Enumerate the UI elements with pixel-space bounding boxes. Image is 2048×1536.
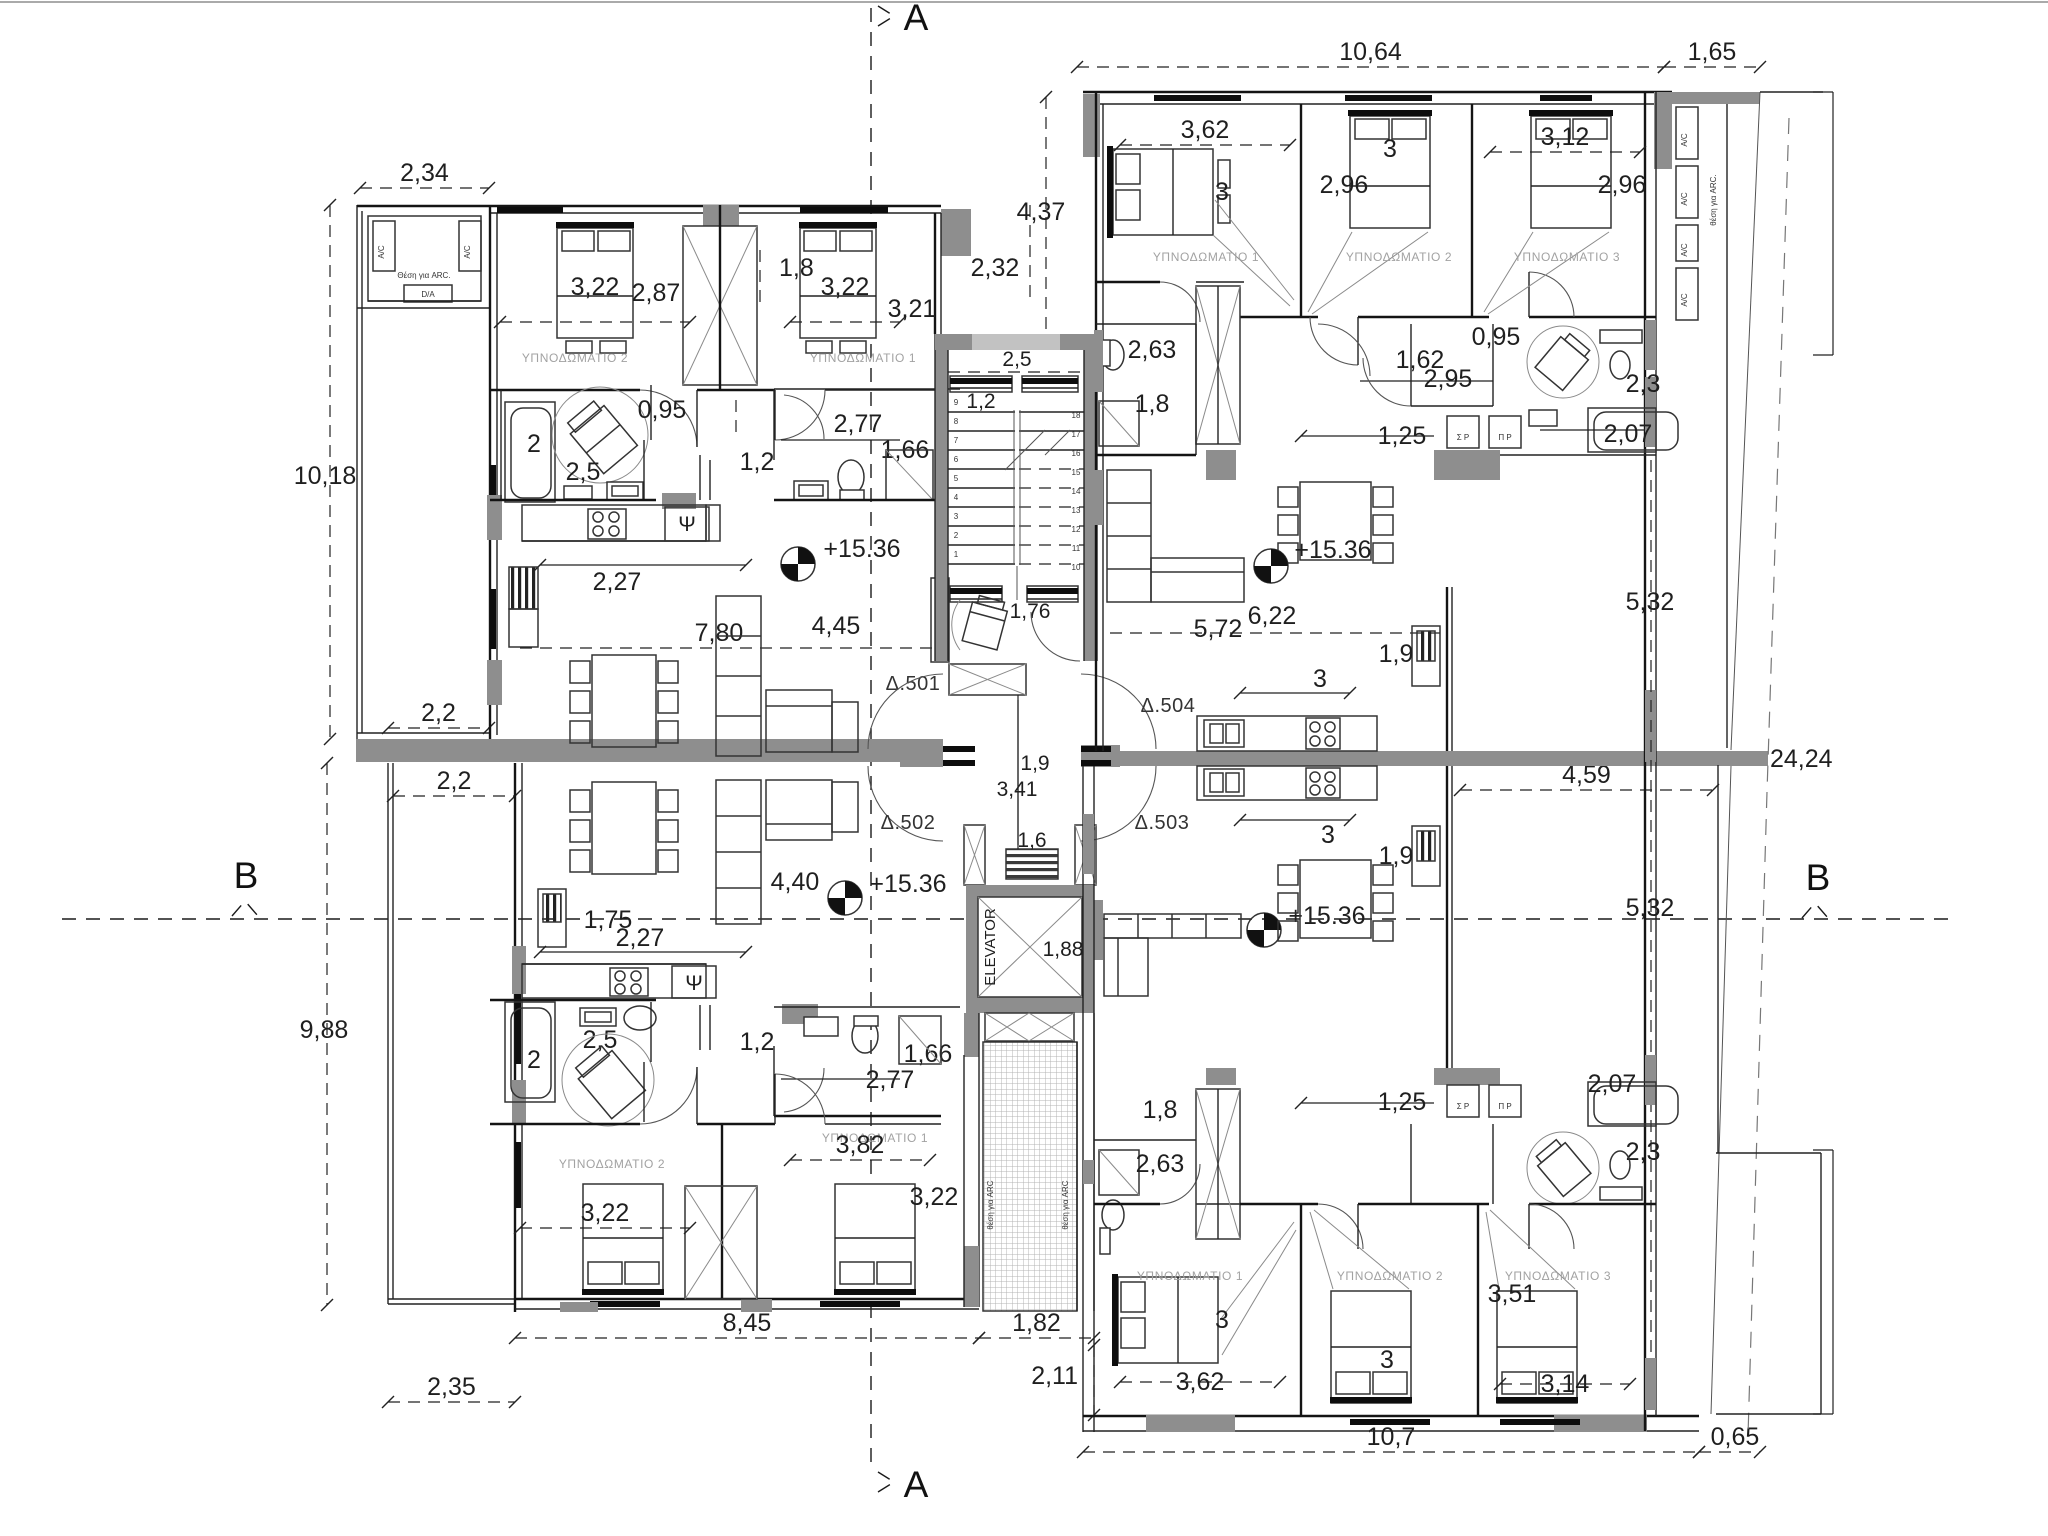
svg-text:10,64: 10,64 bbox=[1339, 38, 1402, 66]
svg-text:1,82: 1,82 bbox=[1012, 1309, 1061, 1337]
svg-text:Ψ: Ψ bbox=[685, 972, 703, 995]
svg-text:Θέση για ARC.: Θέση για ARC. bbox=[397, 271, 450, 280]
svg-text:ΥΠΝΟΔΩΜΑΤΙΟ 2: ΥΠΝΟΔΩΜΑΤΙΟ 2 bbox=[1337, 1269, 1443, 1283]
svg-text:3: 3 bbox=[1321, 821, 1335, 849]
svg-text:6,22: 6,22 bbox=[1248, 602, 1297, 630]
svg-text:+15.36: +15.36 bbox=[823, 535, 900, 563]
svg-text:1,25: 1,25 bbox=[1378, 422, 1427, 450]
svg-text:1,65: 1,65 bbox=[1688, 38, 1737, 66]
svg-text:2,95: 2,95 bbox=[1424, 365, 1473, 393]
svg-text:2,27: 2,27 bbox=[616, 924, 665, 952]
svg-text:ΥΠΝΟΔΩΜΑΤΙΟ 2: ΥΠΝΟΔΩΜΑΤΙΟ 2 bbox=[1346, 250, 1452, 264]
svg-text:2,63: 2,63 bbox=[1136, 1150, 1185, 1178]
svg-text:ΥΠΝΟΔΩΜΑΤΙΟ 1: ΥΠΝΟΔΩΜΑΤΙΟ 1 bbox=[1137, 1269, 1243, 1283]
svg-text:Π P: Π P bbox=[1498, 433, 1511, 442]
svg-text:Δ.502: Δ.502 bbox=[881, 812, 936, 834]
svg-text:2,63: 2,63 bbox=[1128, 336, 1177, 364]
svg-text:4,45: 4,45 bbox=[812, 612, 861, 640]
svg-text:θέση για ARC: θέση για ARC bbox=[1061, 1180, 1070, 1229]
svg-text:0,95: 0,95 bbox=[638, 396, 687, 424]
svg-text:+15.36: +15.36 bbox=[869, 870, 946, 898]
svg-text:2,96: 2,96 bbox=[1598, 171, 1647, 199]
svg-text:B: B bbox=[1806, 857, 1831, 898]
svg-text:10,7: 10,7 bbox=[1367, 1423, 1416, 1451]
svg-text:2,3: 2,3 bbox=[1626, 1138, 1661, 1166]
svg-text:A: A bbox=[904, 0, 929, 38]
svg-text:A/C: A/C bbox=[1680, 192, 1689, 206]
svg-text:A/C: A/C bbox=[1680, 293, 1689, 307]
svg-text:ELEVATOR: ELEVATOR bbox=[982, 908, 999, 986]
svg-text:1,9: 1,9 bbox=[1379, 640, 1414, 668]
svg-text:1,9: 1,9 bbox=[1020, 752, 1049, 775]
svg-text:3,62: 3,62 bbox=[1181, 116, 1230, 144]
svg-text:A/C: A/C bbox=[377, 245, 386, 259]
svg-text:2,35: 2,35 bbox=[427, 1373, 476, 1401]
svg-text:9: 9 bbox=[954, 398, 959, 407]
svg-text:0,65: 0,65 bbox=[1711, 1423, 1760, 1451]
svg-text:2,2: 2,2 bbox=[421, 699, 456, 727]
svg-text:8: 8 bbox=[954, 417, 959, 426]
svg-text:6: 6 bbox=[954, 455, 959, 464]
svg-text:1,25: 1,25 bbox=[1378, 1088, 1427, 1116]
svg-text:2,77: 2,77 bbox=[834, 410, 883, 438]
svg-text:7,80: 7,80 bbox=[695, 619, 744, 647]
svg-text:A/C: A/C bbox=[1680, 133, 1689, 147]
svg-text:2,5: 2,5 bbox=[1002, 348, 1031, 371]
svg-text:Σ P: Σ P bbox=[1457, 1102, 1470, 1111]
svg-text:2,2: 2,2 bbox=[437, 767, 472, 795]
svg-text:3: 3 bbox=[1215, 1306, 1229, 1334]
svg-text:2,96: 2,96 bbox=[1320, 171, 1369, 199]
svg-text:2,07: 2,07 bbox=[1604, 420, 1653, 448]
svg-text:2,87: 2,87 bbox=[632, 279, 681, 307]
svg-text:2,27: 2,27 bbox=[593, 568, 642, 596]
svg-text:3: 3 bbox=[1313, 665, 1327, 693]
svg-text:1,2: 1,2 bbox=[740, 1028, 775, 1056]
svg-text:5,32: 5,32 bbox=[1626, 588, 1675, 616]
svg-text:3: 3 bbox=[1380, 1346, 1394, 1374]
svg-text:10,18: 10,18 bbox=[294, 462, 357, 490]
svg-text:8,45: 8,45 bbox=[723, 1309, 772, 1337]
svg-text:3,22: 3,22 bbox=[581, 1199, 630, 1227]
svg-text:A/C: A/C bbox=[463, 245, 472, 259]
svg-text:5,32: 5,32 bbox=[1626, 894, 1675, 922]
svg-text:A: A bbox=[904, 1464, 929, 1505]
svg-text:1,9: 1,9 bbox=[1379, 842, 1414, 870]
svg-text:18: 18 bbox=[1072, 411, 1081, 420]
svg-text:ΥΠΝΟΔΩΜΑΤΙΟ 2: ΥΠΝΟΔΩΜΑΤΙΟ 2 bbox=[559, 1157, 665, 1171]
svg-text:1,6: 1,6 bbox=[1017, 829, 1046, 852]
svg-text:θέση για ARC: θέση για ARC bbox=[986, 1180, 995, 1229]
svg-text:3: 3 bbox=[1215, 178, 1229, 206]
svg-text:2: 2 bbox=[527, 430, 541, 458]
svg-text:24,24: 24,24 bbox=[1770, 745, 1833, 773]
svg-text:3,22: 3,22 bbox=[571, 273, 620, 301]
svg-text:ΥΠΝΟΔΩΜΑΤΙΟ 3: ΥΠΝΟΔΩΜΑΤΙΟ 3 bbox=[1514, 250, 1620, 264]
svg-text:3: 3 bbox=[954, 512, 959, 521]
svg-text:1,8: 1,8 bbox=[1143, 1096, 1178, 1124]
svg-text:2: 2 bbox=[527, 1046, 541, 1074]
svg-text:2,5: 2,5 bbox=[566, 458, 601, 486]
svg-text:12: 12 bbox=[1072, 525, 1081, 534]
svg-text:2,11: 2,11 bbox=[1031, 1362, 1078, 1390]
svg-text:4,40: 4,40 bbox=[771, 868, 820, 896]
svg-text:B: B bbox=[234, 855, 259, 896]
svg-text:3,12: 3,12 bbox=[1541, 123, 1590, 151]
svg-text:3,22: 3,22 bbox=[821, 273, 870, 301]
svg-text:ΥΠΝΟΔΩΜΑΤΙΟ 2: ΥΠΝΟΔΩΜΑΤΙΟ 2 bbox=[522, 351, 628, 365]
svg-text:Ψ: Ψ bbox=[678, 513, 696, 536]
svg-text:A/C: A/C bbox=[1680, 243, 1689, 257]
svg-text:1,2: 1,2 bbox=[740, 448, 775, 476]
svg-text:1,8: 1,8 bbox=[779, 254, 814, 282]
svg-text:11: 11 bbox=[1072, 544, 1081, 553]
svg-text:0,95: 0,95 bbox=[1472, 323, 1521, 351]
svg-text:14: 14 bbox=[1072, 487, 1081, 496]
svg-text:3,14: 3,14 bbox=[1541, 1370, 1590, 1398]
svg-text:9,88: 9,88 bbox=[300, 1016, 349, 1044]
svg-text:2,34: 2,34 bbox=[400, 159, 449, 187]
svg-text:ΥΠΝΟΔΩΜΑΤΙΟ 1: ΥΠΝΟΔΩΜΑΤΙΟ 1 bbox=[1153, 250, 1259, 264]
svg-text:17: 17 bbox=[1072, 430, 1081, 439]
svg-text:Δ.504: Δ.504 bbox=[1141, 695, 1196, 717]
svg-text:3,21: 3,21 bbox=[888, 295, 937, 323]
svg-text:3,82: 3,82 bbox=[836, 1131, 885, 1159]
svg-text:15: 15 bbox=[1072, 468, 1081, 477]
svg-text:3,62: 3,62 bbox=[1176, 1368, 1225, 1396]
svg-text:1,76: 1,76 bbox=[1010, 600, 1051, 623]
svg-text:θέση για ARC.: θέση για ARC. bbox=[1709, 174, 1718, 225]
svg-text:2,77: 2,77 bbox=[866, 1066, 915, 1094]
svg-text:2,07: 2,07 bbox=[1588, 1070, 1637, 1098]
svg-text:4: 4 bbox=[954, 493, 959, 502]
svg-text:13: 13 bbox=[1072, 506, 1081, 515]
svg-text:2,3: 2,3 bbox=[1626, 370, 1661, 398]
svg-text:5: 5 bbox=[954, 474, 959, 483]
svg-text:+15.36: +15.36 bbox=[1294, 536, 1371, 564]
svg-text:1,8: 1,8 bbox=[1135, 390, 1170, 418]
svg-text:4,37: 4,37 bbox=[1017, 198, 1066, 226]
svg-text:3,22: 3,22 bbox=[910, 1183, 959, 1211]
svg-text:Σ P: Σ P bbox=[1457, 433, 1470, 442]
svg-text:2: 2 bbox=[954, 531, 959, 540]
svg-text:3,51: 3,51 bbox=[1488, 1280, 1537, 1308]
svg-text:2,32: 2,32 bbox=[971, 254, 1020, 282]
svg-text:Δ.503: Δ.503 bbox=[1135, 812, 1190, 834]
svg-text:3: 3 bbox=[1383, 135, 1397, 163]
svg-text:7: 7 bbox=[954, 436, 959, 445]
svg-text:Π P: Π P bbox=[1498, 1102, 1511, 1111]
svg-text:5,72: 5,72 bbox=[1194, 615, 1243, 643]
svg-text:16: 16 bbox=[1072, 449, 1081, 458]
svg-text:3,41: 3,41 bbox=[997, 778, 1038, 801]
svg-text:10: 10 bbox=[1072, 563, 1081, 572]
svg-text:1: 1 bbox=[954, 550, 959, 559]
svg-text:D/A: D/A bbox=[421, 290, 435, 299]
svg-text:ΥΠΝΟΔΩΜΑΤΙΟ 1: ΥΠΝΟΔΩΜΑΤΙΟ 1 bbox=[810, 351, 916, 365]
svg-text:1,88: 1,88 bbox=[1043, 938, 1084, 961]
svg-text:1,2: 1,2 bbox=[966, 390, 995, 413]
